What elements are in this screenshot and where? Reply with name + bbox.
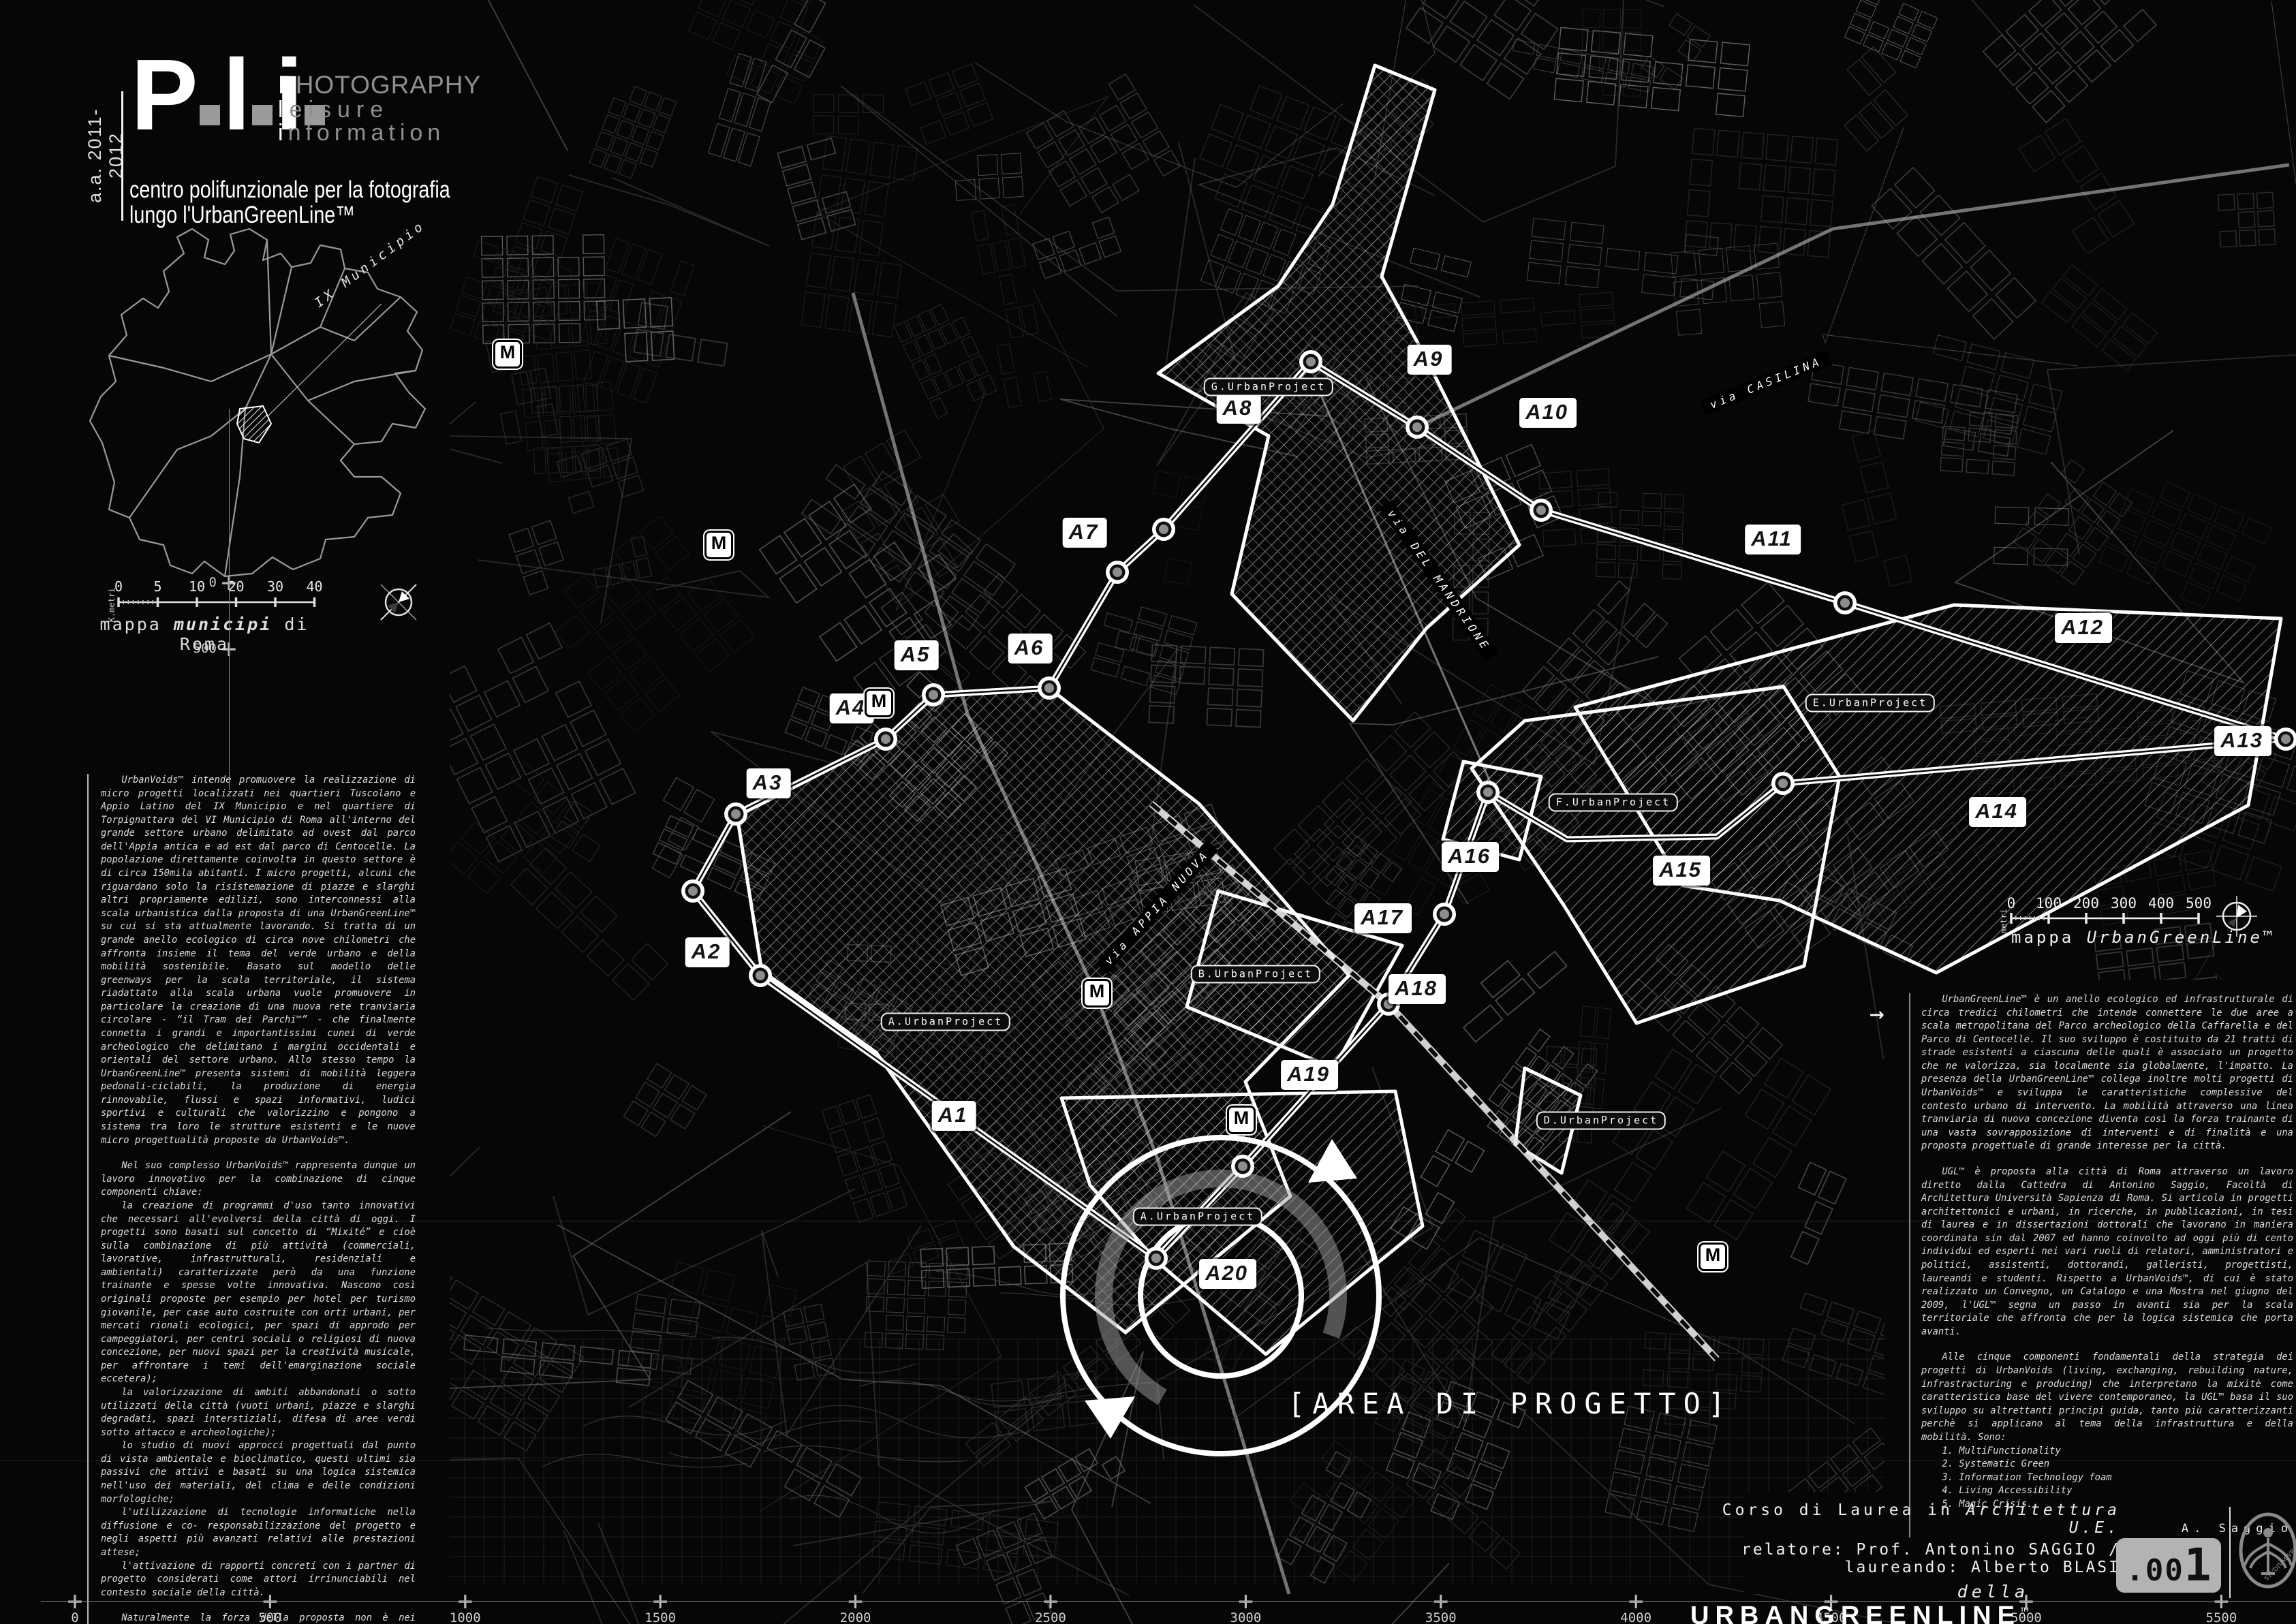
caption-emph: municipi — [174, 614, 272, 634]
route-station-node — [1771, 772, 1795, 795]
word-rest: eisure — [290, 97, 390, 123]
route-station-node — [1145, 1247, 1168, 1270]
route-station-node — [1476, 781, 1500, 804]
paragraph: l'attivazione di rapporti concreti con i… — [101, 1560, 416, 1600]
route-station-node — [724, 802, 747, 826]
caption-emph: UrbanGreenLine™ — [2087, 928, 2276, 947]
svg-text:40: 40 — [306, 578, 322, 595]
logo-letter: l — [223, 39, 249, 151]
svg-text:20: 20 — [228, 578, 244, 595]
essay-paragraphs: UrbanVoids™ intende promuovere la realiz… — [101, 774, 416, 1624]
credit-italic: della — [1957, 1582, 2029, 1602]
word-initial: l — [278, 97, 290, 123]
paragraph: UrbanVoids™ intende promuovere la realiz… — [101, 774, 416, 1147]
route-station-node — [1433, 903, 1456, 926]
route-station-node — [1530, 499, 1553, 522]
caption-text: mappa — [2011, 928, 2087, 947]
word-initial: P — [278, 71, 296, 99]
word-initial: i — [278, 120, 288, 146]
list-item: 2. Systematic Green — [1921, 1458, 2293, 1471]
series-title-line: della URBANGREENLINE™ — [1669, 1582, 2029, 1624]
paragraph: l'utilizzazione di tecnologie informatic… — [101, 1506, 416, 1559]
credit-text: Corso di Laurea in — [1722, 1501, 1966, 1519]
list-item: 1. MultiFunctionality — [1921, 1445, 2293, 1458]
credit-italic: Architettura U.E. — [1966, 1501, 2120, 1537]
route-station-node — [1299, 350, 1322, 373]
region-label: IX Municipio — [312, 218, 429, 311]
route-station-node — [1231, 1155, 1254, 1178]
paragraph: UGL™ è proposta alla città di Roma attra… — [1921, 1166, 2293, 1339]
route-station-node — [874, 728, 897, 751]
svg-text:200: 200 — [2073, 895, 2099, 911]
left-essay-column: UrbanVoids™ intende promuovere la realiz… — [87, 774, 416, 1624]
square-dot-icon — [252, 105, 273, 125]
right-essay-column: UrbanGreenLine™ è un anello ecologico ed… — [1909, 993, 2293, 1537]
svg-text:5: 5 — [153, 578, 161, 595]
paragraph: UrbanGreenLine™ è un anello ecologico ed… — [1921, 993, 2293, 1153]
square-dot-icon — [200, 105, 220, 125]
subtitle-line: centro polifunzionale per la fotografia — [129, 177, 450, 202]
svg-text:400: 400 — [2148, 895, 2174, 911]
badge-digit: 1 — [2184, 1539, 2212, 1591]
word-rest: HOTOGRAPHY — [296, 71, 481, 99]
project-area-polygon — [1158, 65, 1519, 721]
paragraph: Nel suo complesso UrbanVoids™ rappresent… — [101, 1159, 416, 1200]
logo-divider — [121, 91, 123, 221]
route-station-node — [681, 879, 704, 903]
credits-divider — [2229, 1507, 2231, 1598]
svg-text:500: 500 — [2186, 895, 2212, 911]
route-station-node — [1106, 561, 1129, 584]
project-logo: a.a. 2011-2012 Pli PHOTOGRAPHY leisure i… — [41, 40, 450, 196]
caption-text: mappa — [100, 614, 174, 634]
route-station-node — [1377, 993, 1400, 1016]
svg-text:metri: metri — [1999, 909, 2008, 933]
route-station-node — [749, 964, 772, 987]
leader-line — [267, 304, 382, 417]
poster: a.a. 2011-2012 Pli PHOTOGRAPHY leisure i… — [0, 0, 2296, 1624]
badge-text: .00 — [2126, 1553, 2184, 1588]
route-station-node — [922, 683, 945, 706]
logo-words: PHOTOGRAPHY leisure information — [278, 72, 481, 145]
svg-text:30: 30 — [267, 578, 283, 595]
route-station-node — [1038, 676, 1061, 700]
ugl-scale-caption: mappa UrbanGreenLine™ — [2011, 928, 2206, 947]
svg-text:100: 100 — [2036, 895, 2062, 911]
svg-text:10: 10 — [189, 578, 205, 595]
compass-icon — [381, 584, 416, 620]
trademark-symbol: ™ — [2021, 1605, 2029, 1621]
route-station-node — [1152, 518, 1175, 541]
degree-course-line: Corso di Laurea in Architettura U.E. — [1669, 1501, 2120, 1537]
ix-municipio-area — [237, 406, 271, 443]
paragraph: la creazione di programmi d'uso tanto in… — [101, 1200, 416, 1386]
svg-text:300: 300 — [2111, 895, 2137, 911]
list-item: 3. Information Technology foam — [1921, 1471, 2293, 1485]
essay-paragraphs: UrbanGreenLine™ è un anello ecologico ed… — [1921, 993, 2293, 1445]
logo-letter: P — [131, 39, 197, 151]
route-station-node — [1833, 591, 1857, 614]
paragraph: Naturalmente la forza della proposta non… — [101, 1612, 416, 1624]
series-name: URBANGREENLINE — [1690, 1602, 2021, 1624]
sheet-number-badge: .001 — [2116, 1538, 2221, 1593]
rome-municipi-map: IX Municipio 0510203040K.metri — [27, 218, 450, 627]
project-area-polygon — [1472, 687, 1840, 1023]
paragraph: Alle cinque componenti fondamentali dell… — [1921, 1351, 2293, 1444]
area-di-progetto-label: [AREA DI PROGETTO] — [1288, 1387, 1733, 1420]
academic-year: a.a. 2011-2012 — [84, 89, 127, 222]
route-station-node — [1406, 416, 1429, 439]
list-item: 4. Living Accessibility — [1921, 1484, 2293, 1498]
paragraph: la valorizzazione di ambiti abbandonati … — [101, 1386, 416, 1439]
sapienza-emblem-icon: STVDIVM VRBIS — [2237, 1510, 2296, 1591]
minimap-caption: mappa municipi di Roma — [89, 614, 320, 654]
relatore-line: relatore: Prof. Antonino SAGGIO / laurea… — [1669, 1541, 2120, 1576]
rome-outline — [90, 229, 425, 576]
arrow-icon: → — [1870, 1000, 1884, 1028]
left-ruler-line — [229, 409, 230, 790]
route-station-node — [2274, 728, 2296, 751]
paragraph: lo studio di nuovi approcci progettuali … — [101, 1439, 416, 1506]
word-rest: nformation — [288, 120, 446, 146]
